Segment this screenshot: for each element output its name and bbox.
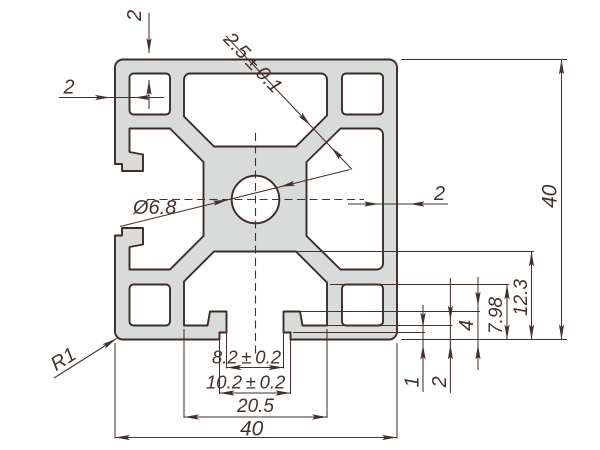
svg-text:1: 1 bbox=[402, 376, 424, 387]
svg-text:7.98: 7.98 bbox=[486, 297, 507, 334]
svg-text:4: 4 bbox=[456, 320, 478, 331]
svg-text:8.2 ± 0.2: 8.2 ± 0.2 bbox=[212, 347, 282, 368]
svg-text:40: 40 bbox=[240, 418, 264, 441]
svg-text:40: 40 bbox=[539, 184, 562, 208]
svg-text:2: 2 bbox=[124, 10, 146, 22]
svg-text:10.2 ± 0.2: 10.2 ± 0.2 bbox=[206, 372, 286, 393]
svg-text:2: 2 bbox=[63, 77, 75, 99]
svg-text:20.5: 20.5 bbox=[236, 396, 274, 417]
svg-text:Ø6.8: Ø6.8 bbox=[132, 197, 176, 219]
svg-text:12.3: 12.3 bbox=[511, 279, 532, 316]
svg-text:2: 2 bbox=[429, 376, 451, 388]
svg-text:2: 2 bbox=[433, 183, 445, 205]
